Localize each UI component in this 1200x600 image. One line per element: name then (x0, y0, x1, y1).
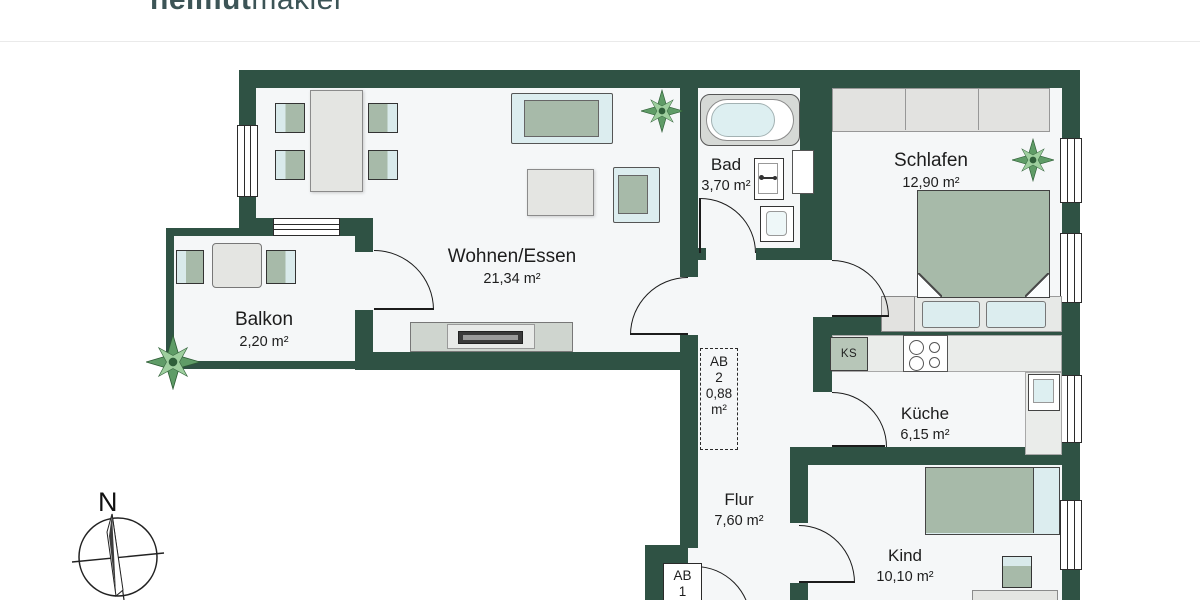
room-label-schlafen: Schlafen 12,90 m² (821, 150, 1041, 191)
dining-chair (368, 103, 398, 133)
wardrobe-divider (978, 89, 979, 130)
toilet-bowl (766, 211, 787, 236)
storage-label: AB (710, 354, 728, 370)
window (237, 125, 258, 197)
fridge: KS (830, 337, 868, 371)
bedroom-door-leaf (832, 315, 889, 317)
brand-logo-light: makler (251, 0, 344, 16)
tv-screen (458, 331, 523, 344)
storage-label: 0,88 (706, 386, 732, 402)
compass-rose: N (58, 478, 180, 600)
kitchen-sink-basin (1033, 379, 1054, 403)
dining-chair (275, 103, 305, 133)
stove-burner (929, 342, 940, 353)
storage-label: AB (673, 568, 691, 584)
room-label-bad: Bad 3,70 m² (616, 155, 836, 194)
room-label-kueche: Küche 6,15 m² (815, 404, 1035, 443)
stove-burner (909, 356, 924, 371)
plant-icon (641, 88, 683, 134)
kitchen-door-leaf (832, 445, 885, 447)
room-area: 12,90 m² (821, 175, 1041, 191)
room-name: Küche (815, 404, 1035, 424)
balcony-door-leaf (374, 308, 434, 310)
room-label-flur: Flur 7,60 m² (629, 490, 849, 529)
fridge-label: KS (841, 348, 857, 360)
stove (903, 335, 948, 372)
balcony-chair (266, 250, 296, 284)
floorplan-page: helmutmakler (0, 0, 1200, 600)
window (1060, 500, 1082, 570)
wall-segment (756, 248, 832, 260)
window (1060, 138, 1082, 203)
window (1060, 233, 1082, 303)
header-divider (0, 41, 1200, 42)
room-label-wohnen: Wohnen/Essen 21,34 m² (402, 246, 622, 287)
wall-segment (355, 236, 373, 252)
toilet (760, 206, 794, 242)
living-room-door-leaf (630, 333, 688, 335)
tv-screen-glass (463, 335, 518, 340)
blanket-fold (918, 273, 942, 297)
brand-logo-bold: helmut (150, 0, 251, 16)
bathtub (700, 94, 800, 146)
room-name: Kind (795, 546, 1015, 566)
kid-bed (925, 467, 1060, 535)
double-bed-mattress (917, 190, 1050, 298)
wall-segment (790, 583, 808, 600)
storage-label: m² (711, 402, 727, 418)
dining-table (310, 90, 363, 192)
pillow (986, 301, 1046, 328)
wall-segment (166, 228, 256, 236)
room-area: 10,10 m² (795, 569, 1015, 585)
storage-label: 1 (679, 584, 687, 600)
sofa (511, 93, 613, 144)
stove-burner (929, 357, 940, 368)
room-name: Schlafen (821, 150, 1041, 172)
storage-label: 2 (715, 370, 723, 386)
room-area: 6,15 m² (815, 427, 1035, 443)
room-area: 7,60 m² (629, 513, 849, 529)
wall-segment (355, 352, 698, 370)
window (273, 218, 340, 236)
wall-segment (645, 545, 663, 600)
brand-logo: helmutmakler (150, 0, 344, 17)
storage-ab1: AB 1 (663, 563, 702, 600)
storage-ab2: AB 2 0,88 m² (700, 348, 738, 450)
room-label-kind: Kind 10,10 m² (795, 546, 1015, 585)
tv-sideboard (410, 322, 573, 352)
sofa-cushion (524, 100, 599, 137)
desk (972, 590, 1058, 600)
bathroom-door-leaf (699, 198, 701, 253)
room-name: Bad (616, 155, 836, 175)
plant-icon (146, 334, 200, 390)
room-area: 3,70 m² (616, 178, 836, 194)
bathtub-basin (711, 103, 775, 137)
balcony-table (212, 243, 262, 288)
kid-bed-mattress (926, 468, 1034, 533)
dining-chair (275, 150, 305, 180)
balcony-chair (176, 250, 204, 284)
room-area: 21,34 m² (402, 271, 622, 287)
wardrobe (832, 88, 1050, 132)
room-name: Wohnen/Essen (402, 246, 622, 268)
compass-north-label: N (98, 487, 118, 517)
pillow (922, 301, 980, 328)
coffee-table (527, 169, 594, 216)
room-name: Flur (629, 490, 849, 510)
dining-chair (368, 150, 398, 180)
wall-segment (239, 70, 1080, 88)
room-name: Balkon (154, 309, 374, 331)
wardrobe-divider (905, 89, 906, 130)
blanket-fold (1025, 273, 1049, 297)
stove-burner (909, 340, 924, 355)
window (1060, 375, 1082, 443)
plant-icon (1012, 138, 1054, 182)
